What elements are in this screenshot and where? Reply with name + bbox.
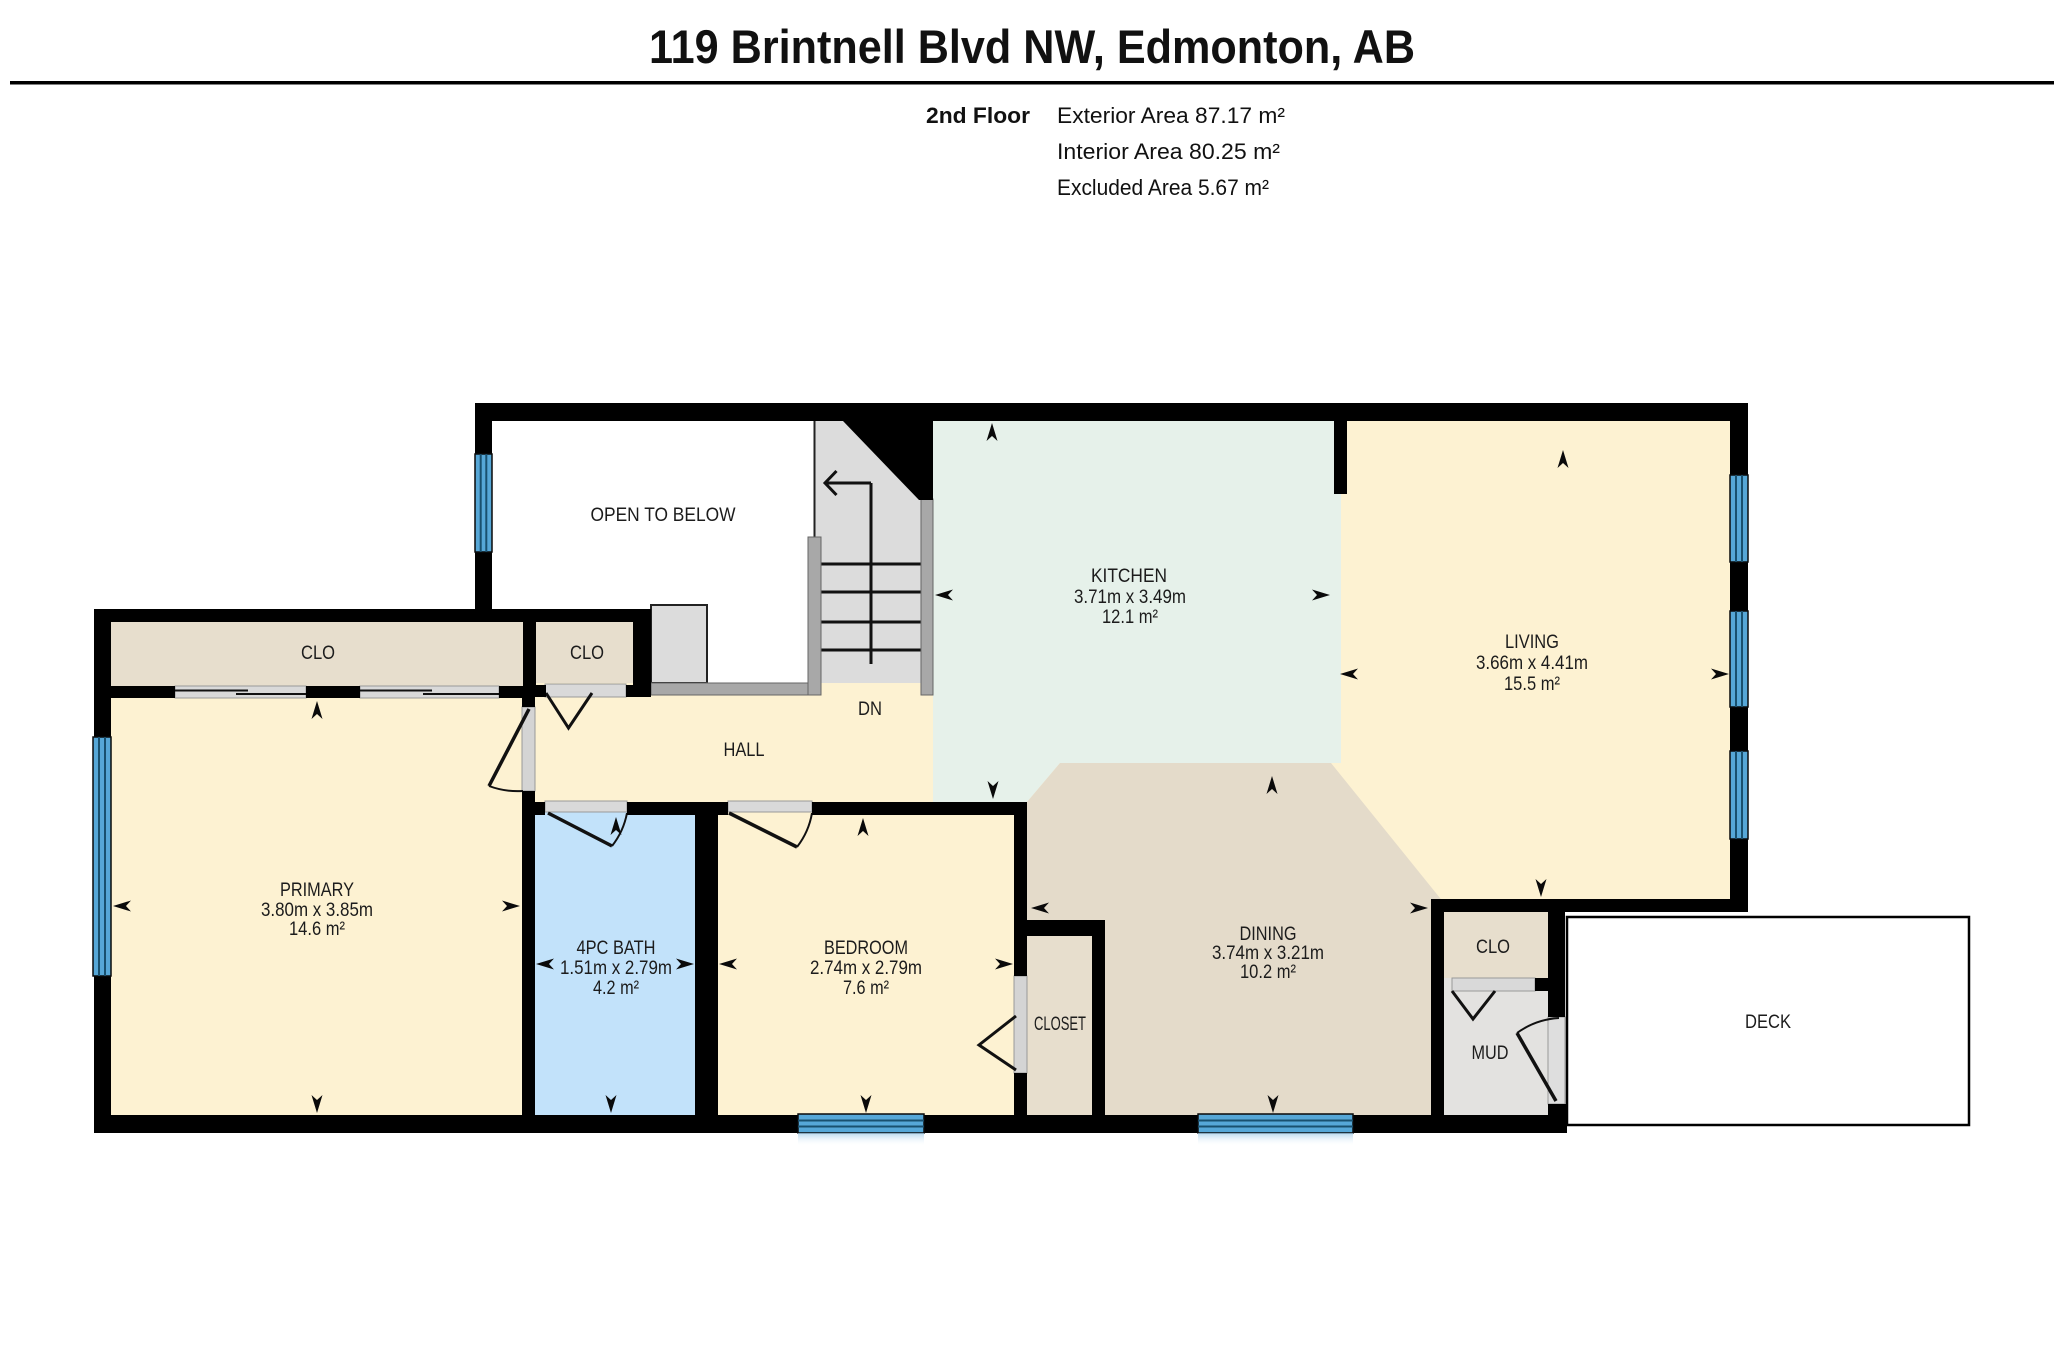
svg-text:PRIMARY: PRIMARY [280, 880, 354, 901]
svg-text:Interior Area 80.25 m²: Interior Area 80.25 m² [1057, 139, 1280, 164]
svg-text:2nd Floor: 2nd Floor [926, 103, 1030, 128]
svg-text:OPEN TO BELOW: OPEN TO BELOW [591, 505, 736, 526]
svg-text:3.66m x 4.41m: 3.66m x 4.41m [1476, 653, 1588, 674]
svg-text:2.74m x 2.79m: 2.74m x 2.79m [810, 958, 922, 979]
svg-text:LIVING: LIVING [1505, 632, 1559, 653]
svg-text:12.1 m²: 12.1 m² [1102, 607, 1158, 628]
svg-text:15.5 m²: 15.5 m² [1504, 674, 1560, 695]
svg-text:1.51m x 2.79m: 1.51m x 2.79m [560, 958, 672, 979]
svg-text:CLO: CLO [1476, 937, 1510, 958]
svg-text:BEDROOM: BEDROOM [824, 938, 908, 959]
svg-text:CLOSET: CLOSET [1034, 1014, 1086, 1035]
svg-text:14.6 m²: 14.6 m² [289, 919, 345, 940]
svg-text:KITCHEN: KITCHEN [1091, 566, 1167, 587]
svg-text:3.74m x 3.21m: 3.74m x 3.21m [1212, 943, 1324, 964]
svg-text:4PC BATH: 4PC BATH [577, 938, 656, 959]
svg-text:CLO: CLO [570, 643, 604, 664]
svg-text:DN: DN [858, 699, 882, 720]
svg-text:DECK: DECK [1745, 1012, 1791, 1033]
svg-text:119 Brintnell Blvd NW, Edmonto: 119 Brintnell Blvd NW, Edmonton, AB [649, 20, 1415, 73]
svg-text:DINING: DINING [1240, 924, 1297, 945]
svg-text:10.2 m²: 10.2 m² [1240, 962, 1296, 983]
svg-text:7.6 m²: 7.6 m² [843, 978, 889, 999]
svg-text:Excluded Area 5.67 m²: Excluded Area 5.67 m² [1057, 175, 1269, 200]
svg-text:4.2 m²: 4.2 m² [593, 978, 639, 999]
svg-text:HALL: HALL [724, 740, 765, 761]
svg-text:Exterior Area 87.17 m²: Exterior Area 87.17 m² [1057, 103, 1285, 128]
svg-text:CLO: CLO [301, 643, 335, 664]
svg-text:MUD: MUD [1472, 1043, 1509, 1064]
svg-text:3.71m x 3.49m: 3.71m x 3.49m [1074, 587, 1186, 608]
svg-text:3.80m x 3.85m: 3.80m x 3.85m [261, 900, 373, 921]
